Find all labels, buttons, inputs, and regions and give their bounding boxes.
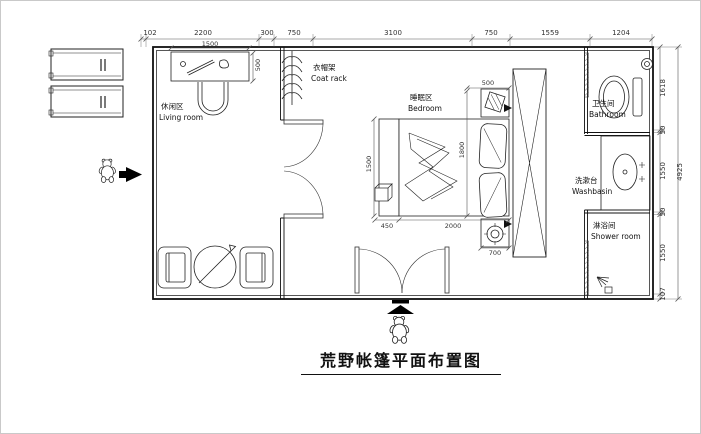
label-washbasin-en: Washbasin <box>572 188 612 197</box>
label-washbasin-zh: 洗漱台 <box>575 177 598 186</box>
dim-right-1618: 1618 <box>659 73 667 103</box>
dim-bench-width: 450 <box>381 222 393 230</box>
lounge-chair-1 <box>49 49 123 80</box>
coat-rack <box>282 51 302 105</box>
dim-nightstand-bottom: 700 <box>489 249 501 257</box>
sink-icon <box>613 154 637 190</box>
hatched-wall-bathroom <box>585 53 589 97</box>
label-bathroom-en: Bathroom <box>589 111 626 120</box>
dim-top-102: 102 <box>143 29 156 37</box>
label-coat-en: Coat rack <box>311 75 347 84</box>
bed-bench <box>379 119 399 216</box>
label-bedroom-zh: 睡眠区 <box>410 94 433 103</box>
desk-chair <box>198 82 228 115</box>
label-shower-en: Shower room <box>591 233 641 242</box>
dim-bench-length: 1500 <box>365 149 373 179</box>
bear-mascot-bottom-icon <box>389 316 410 343</box>
dim-nightstand-top: 500 <box>482 79 494 87</box>
dim-desk-width: 1500 <box>202 40 219 48</box>
armchair-right <box>240 247 273 288</box>
partition-wall-living-bedroom <box>281 47 285 299</box>
side-entrance-arrow-icon <box>119 167 142 182</box>
dim-top-300: 300 <box>260 29 273 37</box>
shower-head-icon <box>597 277 612 293</box>
washbasin-counter <box>601 136 650 210</box>
dim-top-1204: 1204 <box>612 29 630 37</box>
dim-top-2200: 2200 <box>194 29 212 37</box>
dim-top-3100: 3100 <box>384 29 402 37</box>
dim-top-750a: 750 <box>287 29 300 37</box>
label-coat-zh: 衣帽架 <box>313 64 336 73</box>
wardrobe <box>513 69 546 257</box>
interior-double-swing-door <box>284 120 323 218</box>
dim-desk-depth: 500 <box>254 50 262 80</box>
floorplan-canvas: 休闲区 Living room 衣帽架 Coat rack 睡眠区 Bedroo… <box>0 0 701 434</box>
label-bathroom-zh: 卫生间 <box>592 100 615 109</box>
dim-top-1559: 1559 <box>541 29 559 37</box>
dim-top-750b: 750 <box>484 29 497 37</box>
dim-right-50b: 50 <box>659 197 667 227</box>
nightstand-top <box>481 89 509 117</box>
dim-bed-length: 1800 <box>458 135 466 165</box>
dim-right-1550a: 1550 <box>659 156 667 186</box>
hatched-wall-shower <box>585 241 589 295</box>
dim-right-total-4925: 4925 <box>676 157 684 187</box>
armchair-left <box>158 247 191 288</box>
label-living-zh: 休闲区 <box>161 103 184 112</box>
bear-mascot-left-icon <box>98 159 116 183</box>
dim-right-107: 107 <box>659 279 667 309</box>
entrance-arrow-icon <box>387 300 414 314</box>
desk <box>171 52 249 81</box>
entrance-double-door <box>355 247 449 293</box>
round-table <box>194 245 236 288</box>
label-living-en: Living room <box>159 114 203 123</box>
lounge-chair-2 <box>49 86 123 117</box>
dim-bed-width: 2000 <box>445 222 462 230</box>
plan-title: 荒野帐篷平面布置图 <box>301 347 501 375</box>
dim-right-50a: 50 <box>659 115 667 145</box>
dim-right-1550b: 1550 <box>659 238 667 268</box>
faucet-icon <box>639 162 645 182</box>
label-shower-zh: 淋浴间 <box>593 222 616 231</box>
label-bedroom-en: Bedroom <box>408 105 442 114</box>
